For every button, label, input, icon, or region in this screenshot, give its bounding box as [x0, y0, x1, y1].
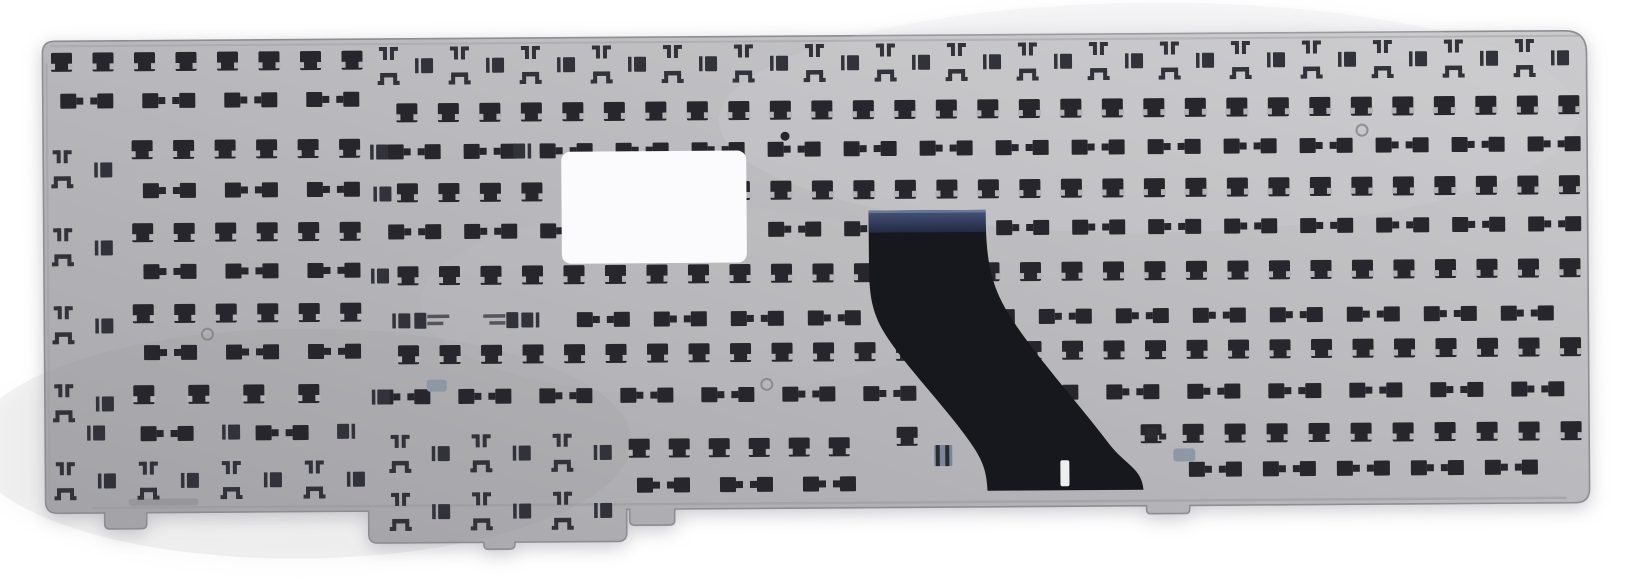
- rubber-bit: [427, 380, 447, 392]
- scratch-mark: [129, 498, 199, 505]
- cable-slit: [1060, 460, 1069, 486]
- product-photo: [0, 0, 1630, 584]
- label-sticker: [561, 150, 747, 263]
- backplate: [0, 0, 1590, 561]
- cable-stiffener: [869, 210, 986, 233]
- keyboard-backplate-image: [0, 0, 1630, 584]
- rubber-bit: [1173, 448, 1195, 461]
